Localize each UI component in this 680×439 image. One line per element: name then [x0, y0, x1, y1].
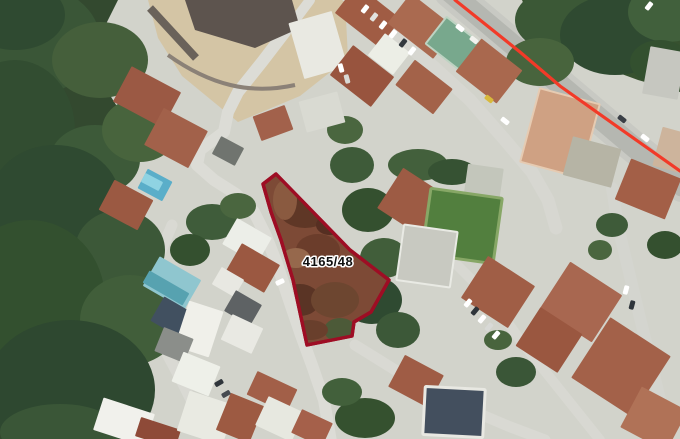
- parcel-terrain-spot: [302, 178, 338, 202]
- building: [221, 314, 264, 354]
- car-icon: [500, 116, 510, 125]
- car-icon: [484, 322, 494, 332]
- tree: [376, 312, 420, 348]
- tree: [330, 147, 374, 183]
- building: [216, 393, 264, 439]
- building: [423, 386, 485, 437]
- building: [396, 225, 457, 288]
- tree: [496, 357, 536, 387]
- tree: [170, 234, 210, 266]
- building: [461, 256, 535, 328]
- tree: [322, 378, 362, 406]
- tree: [596, 213, 628, 237]
- tree: [506, 38, 574, 86]
- tree: [588, 240, 612, 260]
- tree: [647, 231, 680, 259]
- car-icon: [214, 379, 224, 388]
- tree: [220, 193, 256, 219]
- parcel-terrain-spot: [273, 180, 297, 220]
- satellite-map[interactable]: 4165/48: [0, 0, 680, 439]
- car-icon: [477, 314, 487, 324]
- terrain-layer: [0, 0, 680, 439]
- building: [135, 417, 181, 439]
- parcel-terrain-spot: [311, 282, 359, 318]
- parcel-label: 4165/48: [303, 254, 354, 269]
